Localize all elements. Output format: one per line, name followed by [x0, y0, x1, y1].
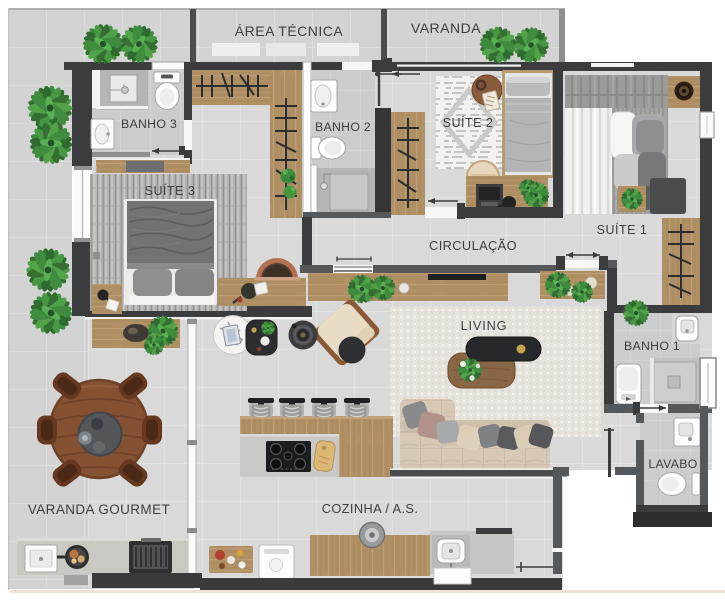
svg-text:SUÍTE 2: SUÍTE 2	[443, 115, 494, 130]
svg-text:LIVING: LIVING	[461, 318, 508, 333]
svg-text:BANHO 1: BANHO 1	[624, 339, 680, 353]
svg-text:VARANDA: VARANDA	[411, 20, 481, 36]
svg-text:BANHO 2: BANHO 2	[315, 120, 371, 134]
svg-text:COZINHA / A.S.: COZINHA / A.S.	[322, 501, 419, 516]
svg-text:BANHO 3: BANHO 3	[121, 117, 177, 131]
svg-text:SUÍTE 3: SUÍTE 3	[145, 183, 196, 198]
svg-text:CIRCULAÇÃO: CIRCULAÇÃO	[429, 238, 517, 253]
svg-text:VARANDA GOURMET: VARANDA GOURMET	[28, 502, 170, 517]
svg-text:ÁREA TÉCNICA: ÁREA TÉCNICA	[235, 23, 344, 39]
svg-text:LAVABO: LAVABO	[648, 457, 697, 471]
svg-text:SUÍTE 1: SUÍTE 1	[597, 222, 648, 237]
